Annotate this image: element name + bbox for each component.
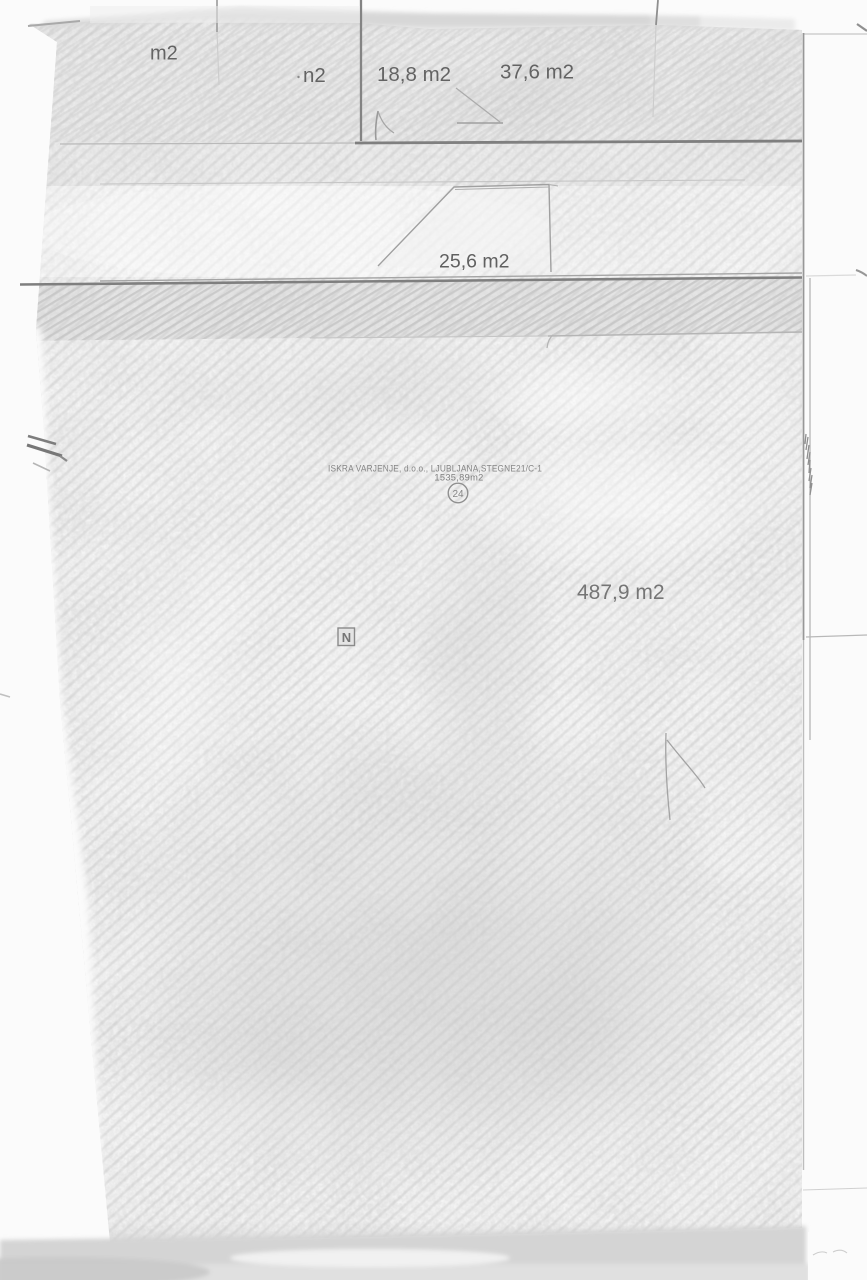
svg-text:m2: m2 [150, 43, 178, 65]
svg-text:N: N [342, 630, 351, 645]
svg-text:25,6 m2: 25,6 m2 [439, 251, 509, 273]
svg-text:487,9 m2: 487,9 m2 [577, 581, 665, 604]
svg-text:n2: n2 [303, 64, 326, 87]
svg-text:37,6 m2: 37,6 m2 [500, 61, 574, 84]
svg-text:18,8 m2: 18,8 m2 [377, 63, 451, 86]
svg-text:24: 24 [452, 489, 464, 500]
svg-text:1535,89m2: 1535,89m2 [434, 473, 483, 483]
